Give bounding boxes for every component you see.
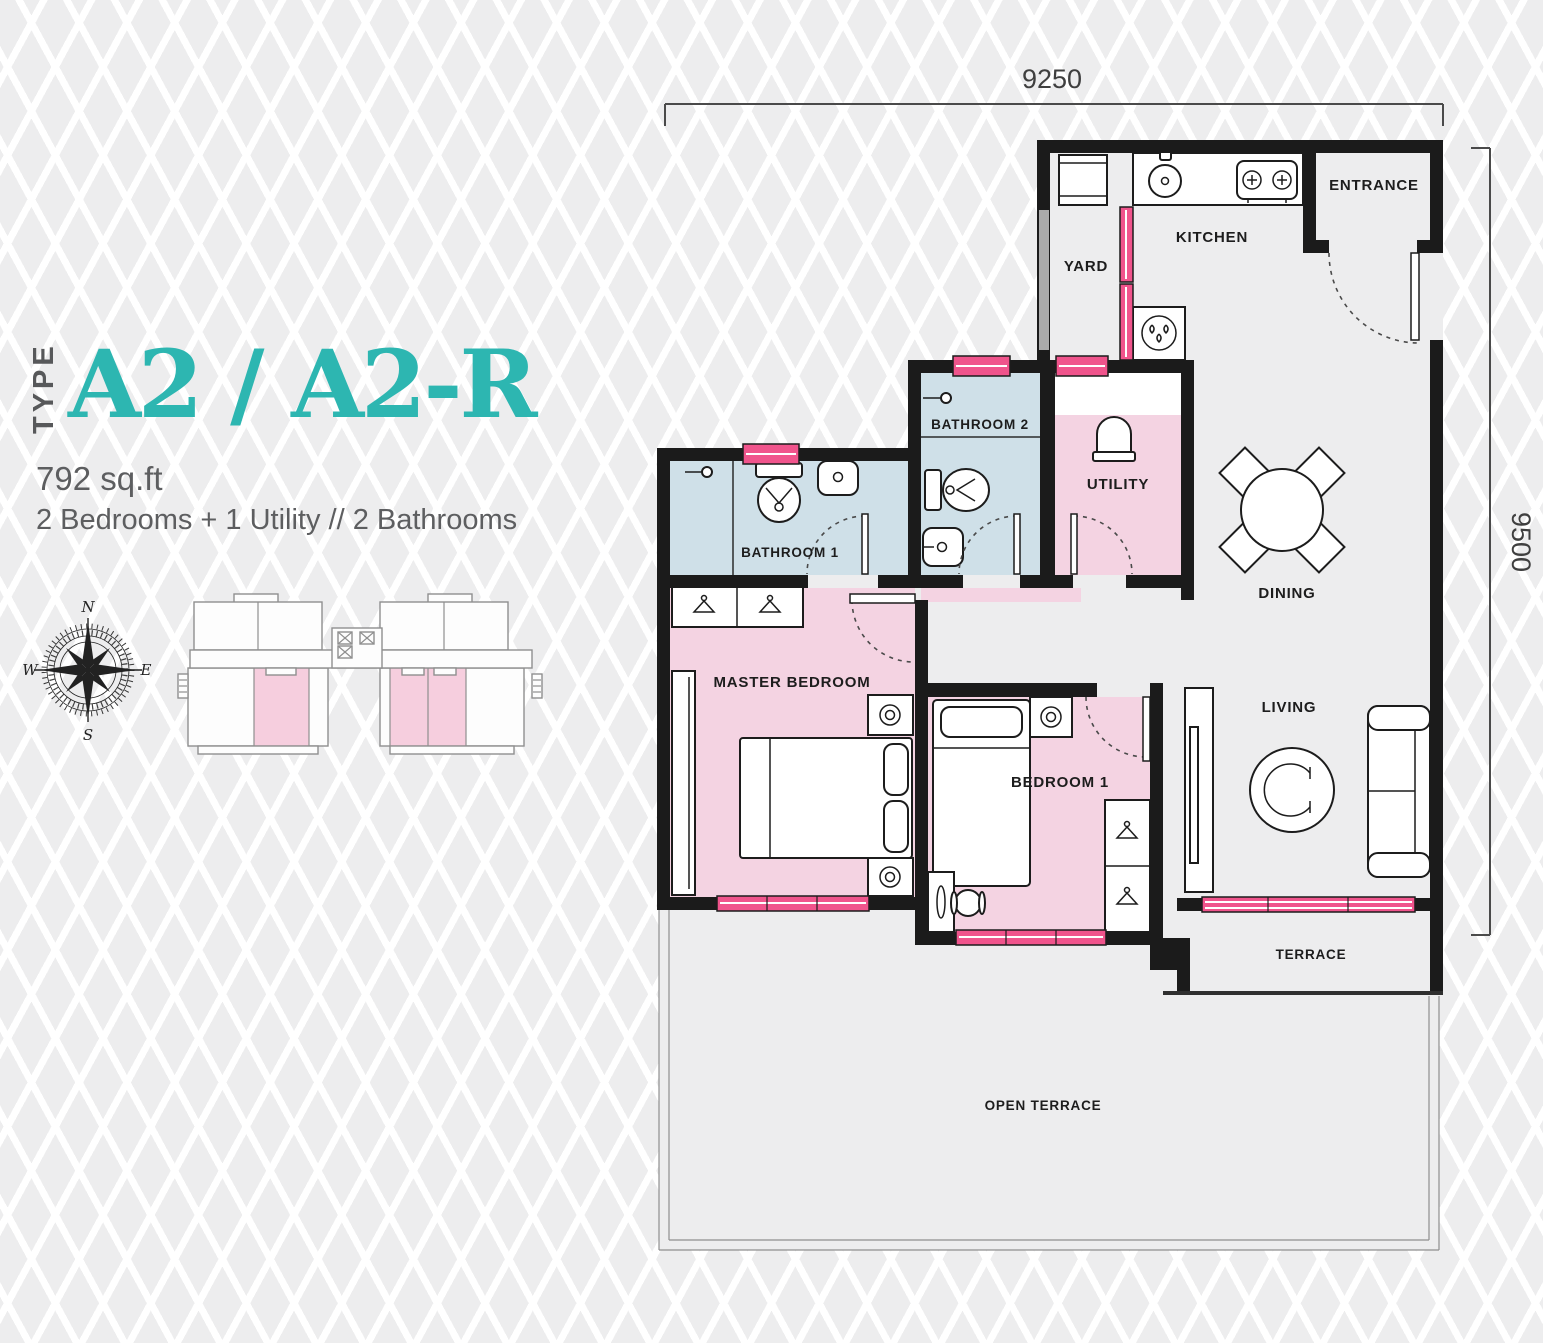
- compass-rose-icon: N S W E: [22, 596, 154, 744]
- compass-north: N: [80, 598, 95, 616]
- bedside-table-icon: [868, 858, 913, 896]
- utility-chair-icon: [1093, 417, 1135, 461]
- dimension-width: 9250: [1022, 64, 1082, 94]
- fridge-icon: [1133, 307, 1185, 360]
- stove-icon: [1237, 161, 1297, 203]
- toilet-icon: [925, 469, 989, 511]
- room-label-bedroom1: BEDROOM 1: [1011, 774, 1109, 791]
- dining-table-icon: [1241, 469, 1323, 551]
- washing-machine-icon: [1059, 155, 1107, 205]
- window: [717, 896, 869, 911]
- key-plan: [176, 588, 556, 768]
- unit-description: 2 Bedrooms + 1 Utility // 2 Bathrooms: [36, 504, 517, 537]
- tv-console-icon: [1185, 688, 1213, 892]
- room-label-entrance: ENTRANCE: [1329, 177, 1419, 194]
- dimension-line-right: 9500: [1471, 148, 1536, 935]
- single-bed-icon: [933, 700, 1030, 886]
- desk-chair-icon: [951, 890, 985, 916]
- room-label-dining: DINING: [1258, 585, 1315, 602]
- room-label-terrace: TERRACE: [1276, 947, 1347, 962]
- basin-icon: [818, 456, 858, 495]
- wardrobe-icon: [672, 583, 803, 627]
- key-plan-highlight-unit: [254, 668, 309, 746]
- compass-west: W: [22, 661, 39, 679]
- window: [1056, 356, 1108, 376]
- coffee-table-icon: [1250, 748, 1334, 832]
- basin-icon: [923, 528, 963, 566]
- unit-area: 792 sq.ft: [36, 460, 163, 498]
- sofa-icon: [1368, 706, 1430, 877]
- bedside-table-icon: [868, 695, 913, 735]
- room-label-master-bedroom: MASTER BEDROOM: [713, 674, 870, 691]
- room-label-utility: UTILITY: [1087, 476, 1149, 493]
- window: [953, 356, 1010, 376]
- unit-type-label: TYPE: [28, 346, 61, 434]
- dimension-line-top: 9250: [665, 64, 1443, 126]
- floor-plan: 9250 9500: [640, 30, 1543, 1310]
- dimension-height: 9500: [1506, 512, 1536, 572]
- window: [743, 444, 799, 464]
- terrace-sliding-door: [1202, 897, 1415, 912]
- compass-south: S: [83, 726, 93, 744]
- dresser-icon: [672, 671, 695, 895]
- yard-sliding-door: [1120, 207, 1133, 360]
- room-label-kitchen: KITCHEN: [1176, 229, 1248, 246]
- room-label-open-terrace: OPEN TERRACE: [985, 1098, 1102, 1113]
- double-bed-icon: [740, 738, 912, 858]
- wardrobe-icon: [1105, 800, 1150, 932]
- page-title: A2 / A2-R: [68, 330, 535, 440]
- room-label-bathroom2: BATHROOM 2: [931, 417, 1029, 432]
- room-label-living: LIVING: [1262, 699, 1317, 716]
- room-label-yard: YARD: [1064, 258, 1108, 275]
- toilet-icon: [756, 463, 802, 522]
- compass-east: E: [140, 661, 152, 679]
- room-label-bathroom1: BATHROOM 1: [741, 545, 839, 560]
- bedside-table-icon: [1030, 697, 1072, 737]
- floor-plan-page: TYPE A2 / A2-R 792 sq.ft 2 Bedrooms + 1 …: [0, 0, 1543, 1343]
- window: [956, 930, 1106, 945]
